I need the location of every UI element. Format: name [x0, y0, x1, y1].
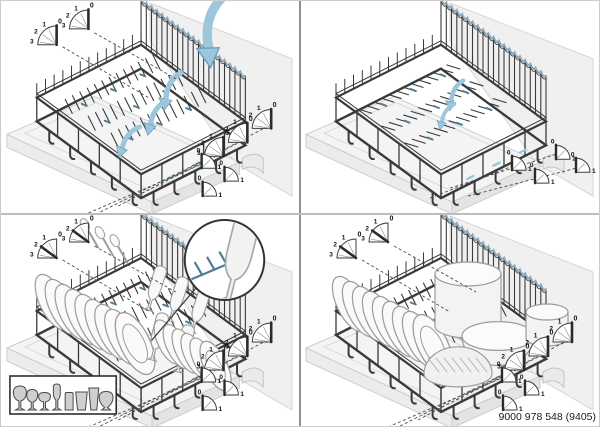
- svg-text:3: 3: [30, 38, 34, 45]
- illustration-tines-folded-flat: 01010101: [300, 1, 600, 213]
- panel-load-plates-and-glasses: 01230123012301230123010101: [1, 214, 299, 427]
- svg-text:0: 0: [225, 343, 229, 350]
- illustration-load-pots-and-bowls: 01230123012301230123010101: [300, 214, 600, 427]
- svg-text:0: 0: [526, 344, 530, 351]
- svg-text:0: 0: [90, 2, 94, 9]
- svg-text:1: 1: [374, 218, 378, 225]
- position-dial-icon: 0123: [30, 231, 62, 258]
- svg-text:2: 2: [501, 354, 505, 361]
- svg-text:0: 0: [530, 162, 534, 169]
- svg-text:3: 3: [329, 252, 333, 259]
- svg-text:0: 0: [198, 389, 202, 396]
- panel-divider-horizontal: [1, 213, 599, 215]
- glass-types-legend: [10, 376, 116, 414]
- svg-text:0: 0: [551, 138, 555, 145]
- svg-text:2: 2: [201, 353, 205, 360]
- svg-text:2: 2: [365, 226, 369, 233]
- svg-text:0: 0: [198, 175, 202, 182]
- svg-text:0: 0: [219, 160, 223, 167]
- svg-text:1: 1: [42, 21, 46, 28]
- svg-text:1: 1: [510, 346, 514, 353]
- svg-text:1: 1: [551, 179, 555, 186]
- svg-text:1: 1: [257, 105, 261, 112]
- svg-text:2: 2: [66, 225, 70, 232]
- svg-text:1: 1: [233, 332, 237, 339]
- svg-text:2: 2: [333, 242, 337, 249]
- svg-text:0: 0: [574, 316, 578, 323]
- dishwasher-lower-basket-figure: 01230123012301230123010101 01010101 0123…: [0, 0, 600, 427]
- document-part-number: 9000 978 548 (9405): [499, 411, 597, 423]
- svg-text:1: 1: [42, 234, 46, 241]
- svg-text:0: 0: [90, 215, 94, 222]
- svg-text:3: 3: [361, 236, 365, 243]
- pilsner-glass-icon: [89, 388, 99, 410]
- svg-text:2: 2: [34, 241, 38, 248]
- svg-text:0: 0: [520, 374, 524, 381]
- panel-tines-folded-flat: 01010101: [300, 1, 600, 213]
- svg-text:0: 0: [390, 216, 394, 223]
- svg-text:0: 0: [273, 315, 277, 322]
- position-dial-icon: 0123: [329, 232, 361, 259]
- svg-text:1: 1: [240, 177, 244, 184]
- svg-text:0: 0: [273, 102, 277, 109]
- panel-fold-down-tines: 01230123012301230123010101: [1, 1, 299, 213]
- svg-text:1: 1: [209, 133, 213, 140]
- svg-text:0: 0: [507, 149, 511, 156]
- svg-text:0: 0: [249, 116, 253, 123]
- panel-load-pots-and-bowls: 01230123012301230123010101: [300, 214, 600, 427]
- svg-text:3: 3: [62, 236, 66, 243]
- svg-text:0: 0: [249, 329, 253, 336]
- svg-text:1: 1: [219, 406, 223, 413]
- svg-text:0: 0: [225, 130, 229, 137]
- svg-text:3: 3: [62, 22, 66, 29]
- svg-text:3: 3: [30, 252, 34, 259]
- svg-text:0: 0: [197, 147, 201, 154]
- tumbler-icon: [65, 393, 73, 411]
- svg-text:1: 1: [74, 218, 78, 225]
- tapered-tumbler-icon: [76, 392, 88, 410]
- svg-text:1: 1: [558, 318, 562, 325]
- svg-text:1: 1: [233, 119, 237, 126]
- svg-text:2: 2: [34, 28, 38, 35]
- svg-text:1: 1: [257, 318, 261, 325]
- svg-text:0: 0: [550, 330, 554, 337]
- svg-text:2: 2: [201, 140, 205, 147]
- svg-text:1: 1: [342, 234, 346, 241]
- position-dial-icon: 0123: [62, 2, 94, 29]
- svg-text:0: 0: [497, 361, 501, 368]
- svg-text:1: 1: [219, 192, 223, 199]
- svg-text:1: 1: [541, 391, 545, 398]
- position-dial-icon: 0123: [361, 216, 393, 243]
- svg-text:1: 1: [592, 168, 596, 175]
- svg-text:1: 1: [209, 346, 213, 353]
- svg-text:0: 0: [219, 374, 223, 381]
- svg-text:0: 0: [571, 151, 575, 158]
- svg-text:0: 0: [197, 361, 201, 368]
- position-dial-icon: 0123: [30, 18, 62, 45]
- illustration-fold-down-tines: 01230123012301230123010101: [1, 1, 299, 213]
- illustration-load-plates-and-glasses: 01230123012301230123010101: [1, 214, 299, 427]
- svg-text:1: 1: [534, 332, 538, 339]
- svg-text:0: 0: [498, 389, 502, 396]
- svg-text:1: 1: [240, 391, 244, 398]
- svg-text:1: 1: [74, 5, 78, 12]
- svg-text:2: 2: [66, 12, 70, 19]
